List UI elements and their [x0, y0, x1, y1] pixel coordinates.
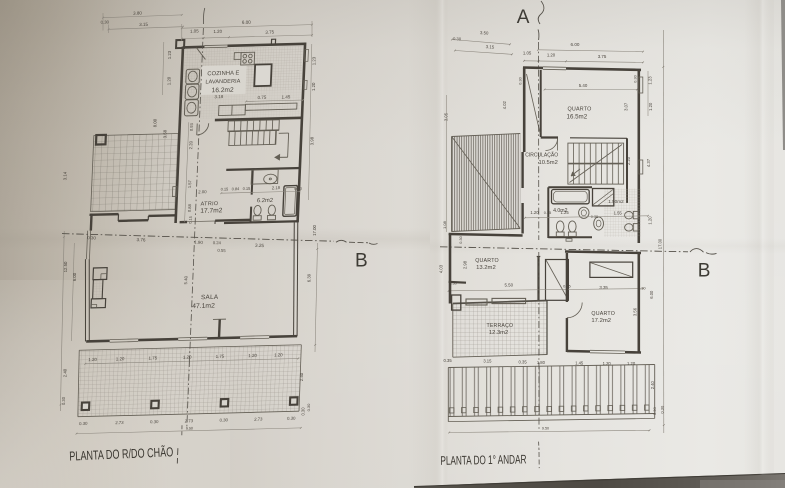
- svg-text:1.20: 1.20: [88, 357, 97, 362]
- svg-text:2.73: 2.73: [185, 418, 194, 423]
- svg-text:2.98: 2.98: [463, 260, 468, 269]
- svg-text:0.30: 0.30: [150, 419, 159, 424]
- svg-text:CIRCULAÇÃO: CIRCULAÇÃO: [525, 152, 558, 159]
- svg-text:3.80: 3.80: [133, 10, 142, 15]
- svg-text:0.35: 0.35: [444, 358, 453, 363]
- svg-text:3.56: 3.56: [633, 307, 638, 316]
- svg-text:17.2m2: 17.2m2: [591, 318, 611, 324]
- svg-text:3.76: 3.76: [136, 237, 146, 242]
- svg-text:1.20: 1.20: [248, 353, 257, 358]
- svg-text:17.7m2: 17.7m2: [200, 207, 223, 215]
- svg-text:0.84: 0.84: [232, 186, 241, 191]
- svg-text:3.50: 3.50: [480, 30, 489, 35]
- svg-text:A: A: [517, 7, 530, 28]
- svg-text:1.45: 1.45: [575, 360, 584, 365]
- svg-text:1.20: 1.20: [274, 352, 283, 357]
- svg-text:TERRAÇO: TERRAÇO: [487, 323, 514, 329]
- svg-text:8.00: 8.00: [153, 118, 158, 127]
- svg-text:1.23: 1.23: [167, 50, 172, 59]
- svg-text:1.20: 1.20: [167, 76, 172, 85]
- svg-text:6.39: 6.39: [307, 273, 312, 282]
- svg-text:0.30: 0.30: [294, 186, 303, 191]
- svg-text:4.03: 4.03: [439, 264, 444, 273]
- svg-text:1.05: 1.05: [523, 50, 532, 55]
- svg-text:0.30: 0.30: [453, 36, 462, 41]
- svg-text:3.05: 3.05: [443, 112, 448, 121]
- svg-text:4.02: 4.02: [502, 100, 507, 109]
- svg-text:0.30: 0.30: [101, 19, 110, 24]
- svg-text:QUARTO: QUARTO: [568, 107, 592, 113]
- svg-text:6.00: 6.00: [649, 290, 654, 299]
- svg-text:1.20: 1.20: [183, 355, 192, 360]
- svg-text:2.73: 2.73: [115, 420, 124, 425]
- svg-text:13.2m2: 13.2m2: [476, 265, 496, 271]
- svg-text:0.15: 0.15: [221, 186, 229, 191]
- svg-text:2.40: 2.40: [650, 380, 655, 389]
- svg-text:1.75: 1.75: [216, 354, 225, 359]
- svg-text:0.30: 0.30: [652, 407, 657, 416]
- svg-text:1.55: 1.55: [614, 211, 623, 216]
- svg-text:3.15: 3.15: [483, 359, 492, 364]
- svg-text:2.20: 2.20: [188, 140, 193, 149]
- svg-text:1.05: 1.05: [190, 28, 199, 33]
- svg-text:LAVANDERIA: LAVANDERIA: [205, 79, 240, 86]
- svg-text:QUARTO: QUARTO: [591, 311, 615, 317]
- svg-text:0.35: 0.35: [591, 215, 598, 219]
- svg-text:47.1m2: 47.1m2: [192, 303, 215, 311]
- svg-text:0.24: 0.24: [213, 240, 222, 245]
- svg-text:1.20: 1.20: [648, 216, 653, 225]
- svg-text:3.15: 3.15: [139, 22, 148, 27]
- svg-text:0.75: 0.75: [257, 95, 266, 100]
- svg-text:3.14: 3.14: [63, 171, 68, 180]
- svg-text:9.50: 9.50: [186, 427, 193, 431]
- svg-text:4.37: 4.37: [646, 158, 651, 167]
- svg-text:0.30: 0.30: [301, 407, 306, 416]
- svg-text:B: B: [355, 251, 368, 272]
- svg-text:0.30: 0.30: [287, 416, 296, 421]
- svg-text:1.45: 1.45: [281, 94, 290, 99]
- svg-text:1.50m2: 1.50m2: [608, 199, 624, 204]
- svg-text:1.20: 1.20: [627, 361, 636, 366]
- svg-text:5.40: 5.40: [183, 275, 188, 284]
- svg-text:3.98: 3.98: [310, 136, 315, 145]
- svg-text:2.40: 2.40: [299, 372, 304, 381]
- svg-text:0.30: 0.30: [79, 421, 88, 426]
- svg-text:2.73: 2.73: [254, 416, 263, 421]
- svg-text:0.30: 0.30: [306, 403, 311, 412]
- svg-text:PLANTA DO 1° ANDAR: PLANTA DO 1° ANDAR: [440, 452, 526, 467]
- svg-text:1.20: 1.20: [213, 29, 222, 34]
- svg-text:1.23: 1.23: [312, 56, 317, 65]
- svg-text:12.3m2: 12.3m2: [489, 330, 508, 336]
- svg-text:0.35: 0.35: [519, 360, 528, 365]
- svg-text:6.00: 6.00: [72, 272, 77, 281]
- svg-text:0.15: 0.15: [544, 211, 551, 215]
- svg-text:6.00: 6.00: [571, 42, 580, 47]
- svg-text:0.15: 0.15: [189, 216, 193, 223]
- svg-text:3.58: 3.58: [162, 129, 167, 138]
- svg-text:1.20: 1.20: [547, 52, 556, 57]
- svg-text:0.30: 0.30: [61, 396, 66, 405]
- svg-text:0.30: 0.30: [219, 417, 228, 422]
- svg-text:0.93: 0.93: [189, 122, 194, 131]
- svg-text:17.00: 17.00: [312, 225, 317, 236]
- svg-text:1.90: 1.90: [194, 240, 203, 245]
- svg-text:3.75: 3.75: [598, 54, 607, 59]
- svg-text:0.30: 0.30: [87, 235, 96, 240]
- svg-text:5.50: 5.50: [505, 282, 514, 287]
- svg-text:6.00: 6.00: [242, 20, 252, 25]
- svg-text:2.40: 2.40: [62, 368, 67, 377]
- svg-text:1.20: 1.20: [311, 82, 316, 91]
- svg-text:0.30: 0.30: [518, 77, 522, 84]
- svg-text:COZINHA E: COZINHA E: [207, 71, 239, 78]
- svg-text:6.2m2: 6.2m2: [257, 198, 273, 204]
- svg-text:1.20: 1.20: [648, 102, 653, 111]
- svg-text:1.57: 1.57: [187, 179, 192, 188]
- svg-text:12.50: 12.50: [63, 261, 68, 272]
- svg-text:2.18: 2.18: [272, 185, 281, 190]
- svg-text:0.30: 0.30: [660, 405, 665, 414]
- svg-text:0.55: 0.55: [217, 248, 226, 253]
- svg-text:1.23: 1.23: [648, 76, 653, 85]
- svg-text:5.40: 5.40: [579, 83, 588, 88]
- svg-text:9.50: 9.50: [542, 427, 549, 431]
- svg-text:10.5m2: 10.5m2: [539, 160, 558, 166]
- svg-text:3.15: 3.15: [486, 44, 495, 49]
- svg-text:0.88: 0.88: [187, 203, 192, 212]
- svg-text:1.20: 1.20: [530, 210, 539, 215]
- svg-text:0.15: 0.15: [243, 186, 251, 191]
- svg-text:1.20: 1.20: [116, 356, 125, 361]
- svg-text:3.18: 3.18: [214, 94, 223, 99]
- svg-text:1.80: 1.80: [537, 360, 546, 365]
- svg-text:2.20: 2.20: [626, 156, 631, 165]
- svg-text:3.75: 3.75: [265, 29, 274, 34]
- svg-text:2.00: 2.00: [198, 189, 207, 194]
- svg-text:3.25: 3.25: [255, 243, 265, 248]
- svg-text:17.00: 17.00: [658, 238, 663, 249]
- svg-text:0.30: 0.30: [634, 75, 638, 82]
- svg-text:0.30: 0.30: [459, 236, 463, 243]
- svg-text:1.75: 1.75: [148, 355, 157, 360]
- svg-text:1.20: 1.20: [603, 361, 612, 366]
- svg-text:QUARTO: QUARTO: [475, 258, 499, 264]
- svg-text:16.5m2: 16.5m2: [567, 114, 588, 121]
- svg-text:3.07: 3.07: [624, 102, 629, 111]
- svg-text:B: B: [698, 261, 711, 282]
- svg-text:1.25: 1.25: [561, 210, 570, 215]
- svg-text:SALA: SALA: [201, 294, 219, 301]
